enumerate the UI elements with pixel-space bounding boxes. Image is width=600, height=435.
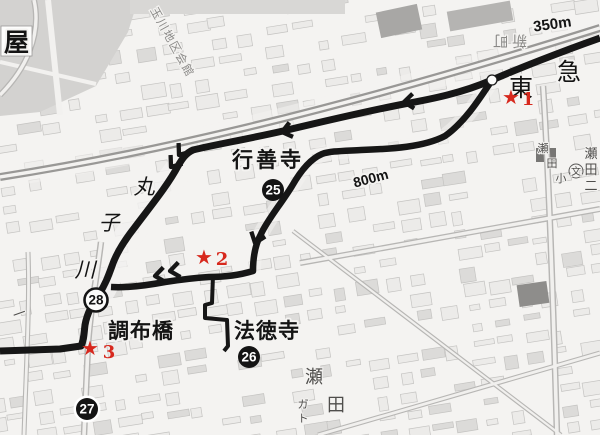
building-block (347, 207, 365, 223)
building-block (424, 192, 442, 206)
building-block (562, 251, 583, 267)
building-block (555, 192, 572, 208)
building-block (39, 411, 54, 425)
building-block (459, 267, 476, 283)
building-block (1, 186, 15, 196)
building-block (115, 399, 125, 410)
building-block (181, 331, 191, 340)
building-block (400, 392, 417, 404)
building-block (408, 410, 422, 420)
building-block (567, 97, 580, 107)
building-block (351, 73, 362, 82)
building-block (250, 415, 262, 423)
building-block (334, 288, 346, 302)
label-kana-ga: ガ (298, 398, 309, 411)
building-block (146, 294, 160, 305)
star-1-icon: ★ (502, 85, 520, 109)
stop-marker-26: 26 (238, 346, 260, 368)
label-river-ko: 子 (99, 211, 122, 235)
building-block (165, 392, 180, 406)
building-block (44, 293, 62, 306)
school-symbol-icon: 文 (571, 165, 581, 178)
building-block (410, 274, 425, 287)
building-block (386, 277, 401, 292)
building-block (527, 351, 544, 364)
stop-marker-28: 28 (85, 289, 108, 312)
building-block (207, 16, 225, 28)
building-block (469, 304, 480, 311)
building-block (319, 41, 329, 51)
building-block (68, 99, 80, 111)
stop-marker-27: 27 (74, 396, 101, 423)
building-block (417, 309, 432, 320)
building-block (237, 34, 253, 48)
building-block (466, 151, 477, 163)
stop-28-number: 28 (88, 293, 104, 308)
building-block (411, 118, 427, 132)
building-block (421, 368, 436, 378)
route-map-svg: 屋 玉川地区会館 新町 350m 東 急 800m 行善寺 丸 子 川 調布橋 … (0, 0, 600, 435)
star-marker-1: ★ 1 (502, 85, 534, 110)
building-block (401, 372, 413, 385)
label-building-partial: 屋 (4, 29, 29, 57)
star-3-number: 3 (103, 342, 116, 363)
building-block (135, 374, 147, 382)
building-block (6, 221, 20, 233)
star-1-number: 1 (522, 89, 535, 110)
building-block (125, 300, 138, 314)
building-block (504, 355, 519, 370)
building-block (254, 299, 278, 316)
label-river-kawa: 川 (75, 258, 98, 282)
building-block (3, 205, 16, 214)
building-block (378, 397, 389, 412)
building-block (191, 212, 205, 224)
building-block (4, 359, 14, 366)
building-block (567, 421, 580, 433)
building-block (441, 305, 459, 320)
building-block (137, 47, 157, 63)
map-canvas: 屋 玉川地区会館 新町 350m 東 急 800m 行善寺 丸 子 川 調布橋 … (0, 0, 600, 435)
building-block (419, 23, 437, 39)
building-block (291, 368, 303, 378)
building-block (473, 323, 483, 332)
building-block (212, 192, 230, 206)
building-block (93, 420, 112, 435)
label-school-sho: 小 (556, 172, 567, 185)
label-temple-hotokuji: 法徳寺 (234, 319, 300, 343)
building-block (429, 211, 447, 227)
stop-27-number: 27 (79, 402, 94, 417)
building-block (309, 288, 322, 297)
building-block (307, 308, 322, 320)
building-block (141, 412, 153, 420)
label-railway-kyu: 急 (557, 59, 581, 86)
label-bridge-chofubashi: 調布橋 (108, 319, 174, 343)
building-block (209, 324, 222, 333)
building-block (325, 232, 342, 244)
building-block (27, 370, 43, 381)
building-block (95, 114, 107, 123)
building-block (207, 170, 221, 185)
building-block (318, 213, 336, 228)
building-block (591, 243, 600, 255)
building-block (410, 292, 432, 308)
building-block (67, 292, 79, 305)
label-river-maru: 丸 (134, 175, 156, 199)
building-block (13, 258, 28, 271)
building-block (83, 231, 97, 241)
star-3-icon: ★ (81, 336, 99, 360)
star-marker-2: ★ 2 (195, 245, 228, 270)
building-block (590, 419, 600, 430)
building-block (563, 405, 579, 418)
building-block (297, 64, 310, 75)
building-block (373, 376, 389, 389)
building-block (522, 178, 537, 193)
building-block (265, 45, 284, 59)
building-block (447, 35, 465, 47)
building-block (489, 279, 511, 295)
stop-26-number: 26 (241, 350, 257, 365)
building-block (34, 389, 54, 405)
building-block (195, 79, 210, 93)
building-block (173, 291, 194, 307)
label-edge-ta: 田 (584, 163, 597, 178)
building-block (518, 141, 534, 152)
building-block (273, 255, 291, 270)
star-2-number: 2 (216, 249, 229, 270)
building-block (335, 306, 345, 314)
building-block (212, 38, 227, 50)
building-block (115, 72, 130, 83)
building-block (376, 67, 386, 75)
building-block (164, 237, 185, 254)
building-block (41, 255, 60, 270)
building-block (322, 59, 336, 71)
building-block (244, 67, 257, 75)
label-district-ta: 田 (327, 395, 345, 416)
building-block (442, 154, 453, 162)
building-block (535, 252, 547, 265)
building-block (170, 83, 183, 98)
label-school-se: 瀬 (538, 141, 549, 155)
building-block (226, 302, 242, 316)
building-block (571, 290, 584, 303)
dark-building-right (517, 281, 550, 307)
label-school-ta: 田 (547, 157, 558, 170)
building-block (162, 370, 180, 386)
building-block (397, 199, 420, 216)
label-station-reversed: 新町 (489, 32, 527, 49)
building-block (42, 122, 60, 135)
stop-marker-25: 25 (262, 179, 284, 201)
building-block (582, 380, 600, 396)
building-block (191, 407, 203, 418)
building-block (584, 228, 600, 242)
building-block (316, 348, 331, 359)
stop-25-number: 25 (265, 183, 281, 198)
building-block (318, 193, 329, 206)
route-start-dot (487, 75, 497, 85)
building-block (512, 410, 525, 424)
building-block (354, 266, 365, 273)
label-edge-ni: 二 (584, 179, 597, 194)
label-edge-se: 瀬 (584, 147, 597, 162)
building-block (250, 281, 265, 297)
star-2-icon: ★ (195, 245, 213, 269)
label-district-se: 瀬 (305, 367, 323, 388)
building-block (10, 396, 25, 408)
label-kana-to: ト (298, 412, 309, 425)
building-block (401, 218, 421, 233)
label-temple-gyozenji: 行善寺 (231, 148, 304, 172)
building-block (451, 211, 462, 226)
building-block (422, 5, 436, 16)
